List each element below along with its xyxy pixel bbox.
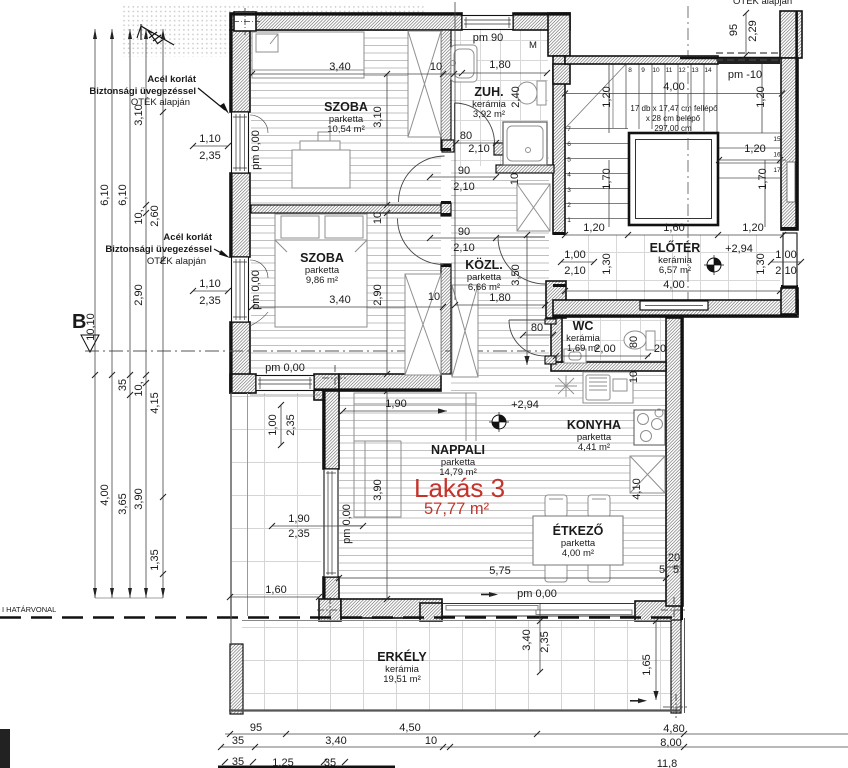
svg-text:1,70: 1,70: [757, 168, 769, 189]
svg-text:3,50: 3,50: [510, 264, 522, 285]
svg-text:1,60: 1,60: [663, 222, 684, 234]
svg-text:M: M: [529, 40, 537, 51]
svg-text:1,20: 1,20: [583, 222, 604, 234]
svg-text:1,20: 1,20: [755, 86, 767, 107]
svg-text:2,35: 2,35: [199, 295, 220, 307]
svg-text:13: 13: [691, 67, 699, 74]
svg-text:20: 20: [668, 552, 680, 564]
svg-text:KÖZL.: KÖZL.: [465, 257, 503, 272]
svg-text:10: 10: [430, 61, 442, 73]
svg-text:ÓTÉK alapján: ÓTÉK alapján: [733, 0, 792, 7]
svg-text:6,10: 6,10: [117, 184, 129, 205]
svg-text:14: 14: [704, 67, 712, 74]
svg-text:Biztonsági üvegezéssel: Biztonsági üvegezéssel: [105, 244, 212, 255]
svg-text:5: 5: [659, 564, 665, 576]
svg-text:SZOBA: SZOBA: [324, 100, 368, 114]
svg-text:35: 35: [324, 757, 336, 768]
svg-text:16: 16: [773, 152, 781, 159]
svg-text:2,10: 2,10: [453, 242, 474, 254]
svg-text:10,: 10,: [133, 209, 145, 224]
svg-text:2,29: 2,29: [747, 20, 759, 41]
svg-text:90: 90: [458, 226, 470, 238]
svg-text:15: 15: [773, 136, 781, 143]
svg-text:5: 5: [567, 156, 571, 163]
svg-text:1,10: 1,10: [199, 133, 220, 145]
svg-text:3,40: 3,40: [329, 294, 350, 306]
svg-text:WC: WC: [573, 319, 594, 333]
svg-text:pm -10: pm -10: [728, 69, 762, 81]
svg-text:3,40: 3,40: [325, 735, 346, 747]
svg-text:ERKÉLY: ERKÉLY: [377, 649, 427, 664]
svg-text:10: 10: [628, 371, 640, 383]
svg-text:4,80: 4,80: [663, 723, 684, 735]
svg-text:2,35: 2,35: [539, 631, 551, 652]
svg-text:1,80: 1,80: [489, 292, 510, 304]
svg-text:1,00: 1,00: [564, 249, 585, 261]
svg-text:4,00: 4,00: [663, 81, 684, 93]
svg-text:5,75: 5,75: [489, 565, 510, 577]
svg-text:10,54 m²: 10,54 m²: [327, 124, 365, 135]
svg-text:pm 90: pm 90: [473, 32, 504, 44]
svg-text:12: 12: [678, 67, 686, 74]
svg-text:10,10: 10,10: [85, 313, 97, 341]
svg-text:10: 10: [425, 735, 437, 747]
svg-text:OTÉK alapján: OTÉK alapján: [147, 256, 206, 267]
svg-text:1,90: 1,90: [288, 513, 309, 525]
svg-text:4,15: 4,15: [149, 392, 161, 413]
svg-text:10: 10: [372, 212, 384, 224]
svg-text:5: 5: [673, 564, 679, 576]
svg-text:KONYHA: KONYHA: [567, 418, 621, 432]
svg-text:1,80: 1,80: [489, 59, 510, 71]
svg-text:57,77 m²: 57,77 m²: [424, 500, 490, 518]
svg-text:9,86 m²: 9,86 m²: [306, 275, 338, 286]
svg-text:4,00: 4,00: [663, 279, 684, 291]
svg-text:80: 80: [531, 322, 543, 334]
svg-text:2,90: 2,90: [133, 284, 145, 305]
svg-text:pm 0,00: pm 0,00: [517, 588, 557, 600]
svg-text:3,90: 3,90: [372, 479, 384, 500]
svg-text:20: 20: [654, 343, 666, 355]
svg-text:2,35: 2,35: [285, 414, 297, 435]
svg-text:Acél korlát: Acél korlát: [147, 74, 196, 85]
svg-text:1,00: 1,00: [775, 249, 796, 261]
svg-text:4,00 m²: 4,00 m²: [562, 548, 594, 559]
svg-text:3,40: 3,40: [521, 629, 533, 650]
svg-text:95: 95: [250, 722, 262, 734]
svg-text:ELŐTÉR: ELŐTÉR: [650, 240, 701, 255]
svg-text:2,10: 2,10: [468, 143, 489, 155]
svg-text:80: 80: [628, 336, 640, 348]
svg-text:1,25: 1,25: [272, 757, 293, 768]
svg-text:pm 0,00: pm 0,00: [250, 130, 262, 170]
svg-text:+2,94: +2,94: [511, 399, 539, 411]
svg-text:Lakás 3: Lakás 3: [414, 473, 505, 503]
svg-text:35: 35: [117, 379, 129, 391]
svg-text:4,10: 4,10: [631, 478, 643, 499]
svg-text:2,35: 2,35: [199, 150, 220, 162]
svg-text:ZUH.: ZUH.: [474, 85, 503, 99]
svg-text:2,40: 2,40: [510, 86, 522, 107]
svg-text:17 db x 17,47 cm fellépő: 17 db x 17,47 cm fellépő: [630, 104, 718, 113]
svg-text:ÉTKEZŐ: ÉTKEZŐ: [553, 523, 604, 538]
svg-text:2,10: 2,10: [564, 265, 585, 277]
svg-text:2,35: 2,35: [288, 528, 309, 540]
svg-text:1,60: 1,60: [265, 584, 286, 596]
svg-text:17: 17: [773, 167, 781, 174]
svg-text:6: 6: [567, 141, 571, 148]
svg-text:297,00 cm: 297,00 cm: [654, 124, 692, 133]
svg-text:1: 1: [567, 217, 571, 224]
svg-text:1,30: 1,30: [601, 253, 613, 274]
svg-text:1,10: 1,10: [199, 278, 220, 290]
svg-text:1,35: 1,35: [149, 549, 161, 570]
svg-text:pm 0,00: pm 0,00: [265, 362, 305, 374]
svg-text:10,: 10,: [133, 381, 145, 396]
svg-text:3,65: 3,65: [117, 493, 129, 514]
svg-text:3,90: 3,90: [133, 488, 145, 509]
svg-text:3: 3: [567, 187, 571, 194]
svg-text:3,92 m²: 3,92 m²: [473, 109, 505, 120]
svg-text:NAPPALI: NAPPALI: [431, 443, 485, 457]
svg-text:1,00: 1,00: [267, 414, 279, 435]
svg-text:10: 10: [652, 67, 660, 74]
svg-text:3,10: 3,10: [133, 104, 145, 125]
svg-text:2,00: 2,00: [594, 343, 615, 355]
svg-text:10: 10: [428, 291, 440, 303]
svg-text:2,90: 2,90: [372, 284, 384, 305]
svg-text:90: 90: [458, 165, 470, 177]
svg-text:1,65: 1,65: [641, 654, 653, 675]
svg-text:4: 4: [567, 172, 571, 179]
svg-text:1,70: 1,70: [601, 168, 613, 189]
svg-text:4,41 m²: 4,41 m²: [578, 442, 610, 453]
svg-text:95: 95: [728, 24, 740, 36]
svg-text:+2,94: +2,94: [725, 243, 753, 255]
svg-text:10: 10: [509, 173, 521, 185]
svg-text:2,10: 2,10: [775, 265, 796, 277]
svg-text:I HATÁRVONAL: I HATÁRVONAL: [2, 605, 56, 614]
svg-text:3,40: 3,40: [329, 61, 350, 73]
svg-text:SZOBA: SZOBA: [300, 251, 344, 265]
svg-text:19,51 m²: 19,51 m²: [383, 674, 421, 685]
svg-text:x 28 cm belépő: x 28 cm belépő: [646, 114, 701, 123]
svg-text:1,20: 1,20: [744, 143, 765, 155]
svg-text:2,10: 2,10: [453, 181, 474, 193]
svg-text:2: 2: [567, 202, 571, 209]
svg-text:Biztonsági üvegezéssel: Biztonsági üvegezéssel: [89, 86, 196, 97]
svg-text:2,60: 2,60: [149, 205, 161, 226]
svg-text:8,00: 8,00: [660, 737, 681, 749]
svg-text:6,57 m²: 6,57 m²: [659, 265, 691, 276]
svg-text:pm 0,00: pm 0,00: [250, 270, 262, 310]
svg-text:1,20: 1,20: [601, 86, 613, 107]
svg-text:4,00: 4,00: [99, 484, 111, 505]
svg-text:80: 80: [460, 130, 472, 142]
svg-text:35: 35: [232, 756, 244, 768]
svg-text:1,20: 1,20: [742, 222, 763, 234]
svg-text:9: 9: [641, 67, 645, 74]
svg-text:35: 35: [232, 735, 244, 747]
svg-text:1,90: 1,90: [385, 398, 406, 410]
svg-text:11: 11: [666, 67, 673, 74]
svg-text:pm 0,00: pm 0,00: [341, 504, 353, 544]
svg-text:7: 7: [567, 126, 571, 133]
svg-text:3,10: 3,10: [372, 106, 384, 127]
svg-text:6,10: 6,10: [99, 184, 111, 205]
svg-text:1,30: 1,30: [755, 253, 767, 274]
svg-text:4,50: 4,50: [399, 722, 420, 734]
svg-text:Acél korlát: Acél korlát: [163, 232, 212, 243]
svg-text:8: 8: [628, 67, 632, 74]
svg-text:11,8: 11,8: [657, 758, 678, 768]
